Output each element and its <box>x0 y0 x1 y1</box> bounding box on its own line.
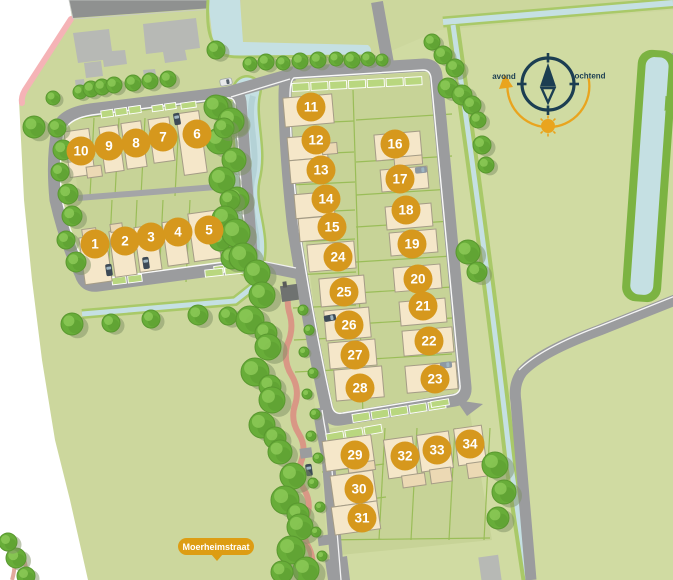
svg-text:19: 19 <box>404 237 419 252</box>
svg-text:33: 33 <box>429 443 445 458</box>
svg-text:26: 26 <box>341 318 357 333</box>
svg-text:7: 7 <box>159 130 167 145</box>
svg-text:29: 29 <box>347 448 362 463</box>
svg-text:28: 28 <box>352 381 368 396</box>
svg-text:22: 22 <box>421 334 436 349</box>
svg-text:23: 23 <box>427 372 443 387</box>
svg-text:Moerheimstraat: Moerheimstraat <box>182 542 249 552</box>
svg-text:16: 16 <box>387 137 403 152</box>
svg-text:13: 13 <box>313 163 329 178</box>
svg-text:20: 20 <box>410 272 425 287</box>
svg-text:30: 30 <box>351 482 366 497</box>
svg-text:ochtend: ochtend <box>574 72 605 81</box>
svg-text:4: 4 <box>174 225 182 240</box>
svg-text:24: 24 <box>330 250 346 265</box>
svg-text:17: 17 <box>392 172 407 187</box>
svg-text:3: 3 <box>147 230 155 245</box>
svg-text:15: 15 <box>324 220 340 235</box>
svg-text:8: 8 <box>132 136 140 151</box>
svg-text:11: 11 <box>304 100 319 115</box>
svg-text:21: 21 <box>415 299 431 314</box>
svg-text:2: 2 <box>121 234 129 249</box>
svg-text:10: 10 <box>73 144 88 159</box>
svg-text:6: 6 <box>193 127 201 142</box>
svg-text:12: 12 <box>308 133 323 148</box>
svg-text:18: 18 <box>398 203 414 218</box>
svg-text:5: 5 <box>205 223 213 238</box>
svg-text:27: 27 <box>347 348 362 363</box>
svg-text:1: 1 <box>91 237 99 252</box>
svg-text:32: 32 <box>397 449 412 464</box>
svg-text:31: 31 <box>354 511 370 526</box>
svg-text:25: 25 <box>336 285 352 300</box>
svg-text:34: 34 <box>462 437 478 452</box>
svg-text:avond: avond <box>492 72 516 81</box>
svg-text:9: 9 <box>105 139 113 154</box>
svg-text:14: 14 <box>318 192 334 207</box>
